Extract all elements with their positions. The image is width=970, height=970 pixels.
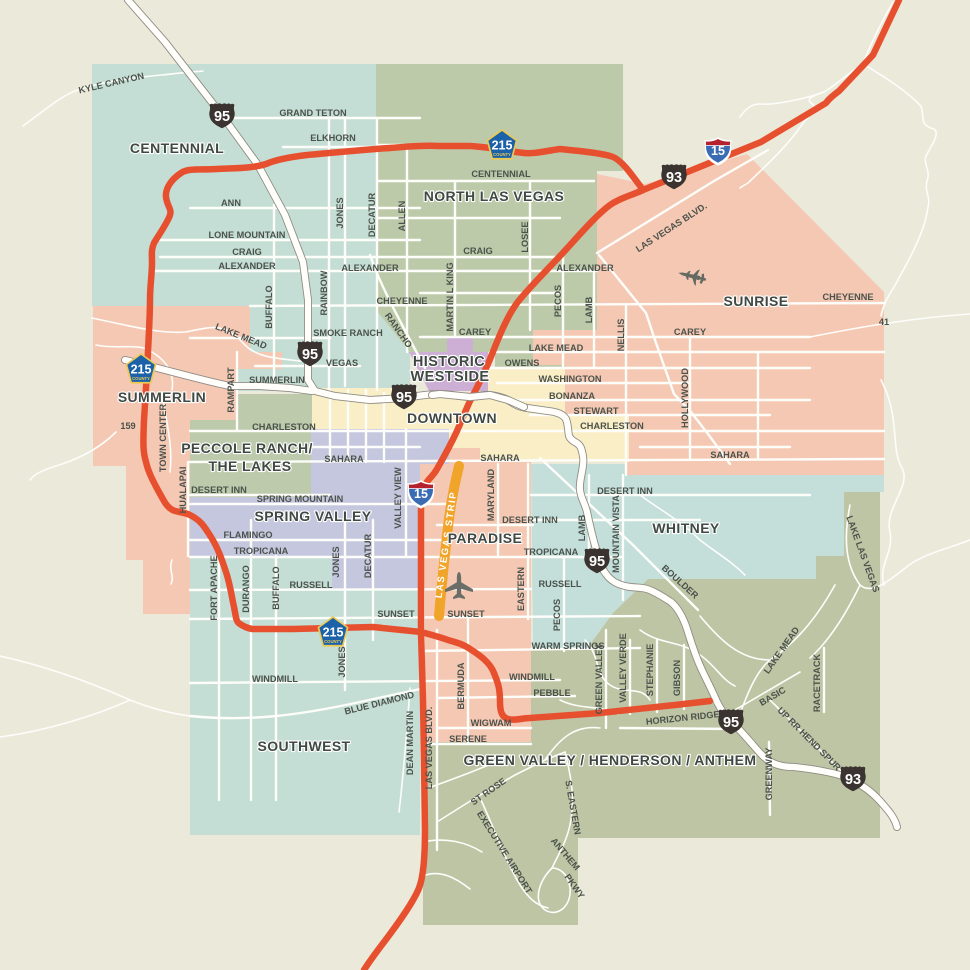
svg-text:SOUTHWEST: SOUTHWEST <box>257 738 350 754</box>
svg-text:DESERT INN: DESERT INN <box>502 515 558 525</box>
svg-text:SPRING VALLEY: SPRING VALLEY <box>255 508 372 524</box>
svg-text:DOWNTOWN: DOWNTOWN <box>407 410 497 426</box>
svg-text:NORTH LAS VEGAS: NORTH LAS VEGAS <box>424 188 565 204</box>
svg-text:CHEYENNE: CHEYENNE <box>376 296 427 306</box>
svg-text:OWENS: OWENS <box>505 358 540 368</box>
svg-text:RUSSELL: RUSSELL <box>290 580 333 590</box>
svg-text:SPRING MOUNTAIN: SPRING MOUNTAIN <box>257 494 344 504</box>
svg-text:BERMUDA: BERMUDA <box>456 662 466 709</box>
svg-text:DESERT INN: DESERT INN <box>191 485 247 495</box>
svg-text:RAMPART: RAMPART <box>226 367 236 413</box>
svg-text:HISTORIC: HISTORIC <box>413 354 485 370</box>
svg-text:WINDMILL: WINDMILL <box>509 672 555 682</box>
svg-text:CHEYENNE: CHEYENNE <box>822 292 873 302</box>
svg-text:SAHARA: SAHARA <box>480 453 520 463</box>
svg-text:SERENE: SERENE <box>449 734 487 744</box>
svg-text:VALLEY VERDE: VALLEY VERDE <box>618 633 628 703</box>
svg-text:ALEXANDER: ALEXANDER <box>218 261 276 271</box>
svg-text:JONES: JONES <box>335 197 345 228</box>
svg-text:STEWART: STEWART <box>574 406 619 416</box>
svg-text:CENTENNIAL: CENTENNIAL <box>130 140 224 156</box>
svg-text:PEBBLE: PEBBLE <box>533 688 570 698</box>
svg-text:ALEXANDER: ALEXANDER <box>556 263 614 273</box>
svg-text:CHARLESTON: CHARLESTON <box>252 422 316 432</box>
svg-text:SUNSET: SUNSET <box>377 609 415 619</box>
svg-text:GREEN VALLEY: GREEN VALLEY <box>594 644 604 715</box>
svg-text:HOLLYWOOD: HOLLYWOOD <box>680 368 690 428</box>
svg-text:SAHARA: SAHARA <box>324 454 364 464</box>
svg-text:WIGWAM: WIGWAM <box>471 718 512 728</box>
svg-text:FLAMINGO: FLAMINGO <box>224 530 273 540</box>
svg-text:FORT APACHE: FORT APACHE <box>209 555 219 620</box>
svg-text:SUNSET: SUNSET <box>447 609 485 619</box>
svg-text:HUALAPAI: HUALAPAI <box>178 467 188 514</box>
svg-text:41: 41 <box>879 317 889 327</box>
svg-text:DEAN MARTIN: DEAN MARTIN <box>405 710 415 775</box>
svg-text:SUMMERLIN: SUMMERLIN <box>118 389 206 405</box>
svg-text:CHARLESTON: CHARLESTON <box>580 421 644 431</box>
svg-text:TOWN CENTER: TOWN CENTER <box>158 404 168 473</box>
svg-text:ANN: ANN <box>221 198 241 208</box>
svg-text:PECOS: PECOS <box>552 599 562 631</box>
svg-text:CAREY: CAREY <box>674 327 706 337</box>
svg-text:LAS VEGAS BLVD.: LAS VEGAS BLVD. <box>424 707 434 790</box>
svg-text:BUFFALO: BUFFALO <box>264 285 274 328</box>
svg-text:WESTSIDE: WESTSIDE <box>411 369 490 385</box>
svg-text:JONES: JONES <box>337 646 347 677</box>
svg-text:THE LAKES: THE LAKES <box>209 458 292 474</box>
svg-text:95: 95 <box>214 109 230 125</box>
svg-text:TROPICANA: TROPICANA <box>234 546 289 556</box>
svg-text:CRAIG: CRAIG <box>463 246 493 256</box>
svg-text:STEPHANIE: STEPHANIE <box>645 644 655 697</box>
svg-text:PECCOLE RANCH/: PECCOLE RANCH/ <box>181 440 313 456</box>
svg-text:LAMB: LAMB <box>584 296 594 323</box>
svg-text:LAKE MEAD: LAKE MEAD <box>529 343 584 353</box>
svg-text:15: 15 <box>414 487 428 501</box>
svg-text:SMOKE RANCH: SMOKE RANCH <box>313 328 383 338</box>
svg-text:RAINBOW: RAINBOW <box>319 270 329 315</box>
svg-text:GRAND TETON: GRAND TETON <box>279 108 347 118</box>
svg-text:GREENWAY: GREENWAY <box>764 748 774 801</box>
svg-text:SUNRISE: SUNRISE <box>723 293 788 309</box>
svg-text:JONES: JONES <box>331 546 341 577</box>
svg-text:95: 95 <box>589 554 605 570</box>
svg-text:ELKHORN: ELKHORN <box>310 133 356 143</box>
svg-text:VALLEY VIEW: VALLEY VIEW <box>393 467 403 529</box>
svg-text:DURANGO: DURANGO <box>241 565 251 612</box>
svg-text:PECOS: PECOS <box>553 285 563 317</box>
svg-text:SAHARA: SAHARA <box>710 450 750 460</box>
svg-text:ALEXANDER: ALEXANDER <box>341 263 399 273</box>
svg-text:WHITNEY: WHITNEY <box>652 520 720 536</box>
svg-text:NELLIS: NELLIS <box>616 319 626 352</box>
svg-text:GREEN VALLEY / HENDERSON / ANT: GREEN VALLEY / HENDERSON / ANTHEM <box>464 752 757 768</box>
svg-text:ALLEN: ALLEN <box>397 200 407 231</box>
svg-text:GIBSON: GIBSON <box>672 660 682 697</box>
svg-text:WINDMILL: WINDMILL <box>252 674 298 684</box>
svg-text:DECATUR: DECATUR <box>363 534 373 579</box>
svg-text:MOUNTAIN VISTA: MOUNTAIN VISTA <box>611 495 621 573</box>
svg-text:MARTIN L KING: MARTIN L KING <box>445 262 455 331</box>
svg-text:CENTENNIAL: CENTENNIAL <box>471 169 531 179</box>
svg-text:CRAIG: CRAIG <box>232 247 262 257</box>
svg-text:RUSSELL: RUSSELL <box>539 579 582 589</box>
svg-text:LOSEE: LOSEE <box>520 221 530 252</box>
svg-text:159: 159 <box>120 421 135 431</box>
svg-text:15: 15 <box>711 144 725 158</box>
svg-text:95: 95 <box>302 347 318 363</box>
svg-text:SUMMERLIN: SUMMERLIN <box>249 375 305 385</box>
svg-text:PARADISE: PARADISE <box>448 530 523 546</box>
svg-text:95: 95 <box>723 715 739 731</box>
svg-text:BUFFALO: BUFFALO <box>271 566 281 609</box>
svg-text:LAMB: LAMB <box>577 514 587 541</box>
svg-text:TROPICANA: TROPICANA <box>524 547 579 557</box>
svg-text:EASTERN: EASTERN <box>516 567 526 611</box>
svg-text:BONANZA: BONANZA <box>549 391 595 401</box>
svg-text:95: 95 <box>396 390 412 406</box>
svg-text:LONE MOUNTAIN: LONE MOUNTAIN <box>209 230 286 240</box>
svg-text:DECATUR: DECATUR <box>367 193 377 238</box>
svg-text:93: 93 <box>666 170 682 186</box>
svg-text:VEGAS: VEGAS <box>326 358 358 368</box>
svg-text:WASHINGTON: WASHINGTON <box>538 374 601 384</box>
svg-text:CAREY: CAREY <box>459 327 491 337</box>
svg-text:MARYLAND: MARYLAND <box>486 469 496 522</box>
svg-text:DESERT INN: DESERT INN <box>597 486 653 496</box>
svg-text:RACETRACK: RACETRACK <box>812 654 822 713</box>
svg-text:93: 93 <box>845 772 861 788</box>
